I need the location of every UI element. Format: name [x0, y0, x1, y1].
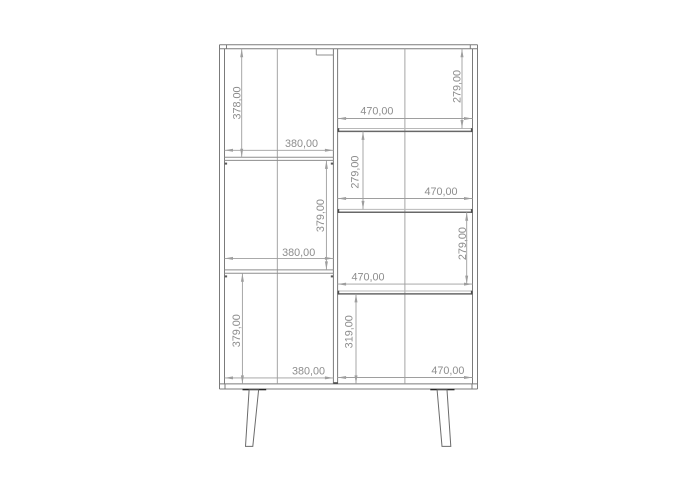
svg-text:470,00: 470,00 [351, 272, 384, 284]
svg-text:279,00: 279,00 [349, 156, 361, 189]
svg-text:380,00: 380,00 [285, 138, 318, 150]
svg-text:470,00: 470,00 [424, 186, 457, 198]
svg-text:470,00: 470,00 [431, 365, 464, 377]
svg-text:380,00: 380,00 [282, 247, 315, 259]
svg-text:279,00: 279,00 [451, 70, 463, 103]
svg-text:379,00: 379,00 [315, 199, 327, 232]
svg-text:380,00: 380,00 [292, 366, 325, 378]
svg-text:319,00: 319,00 [343, 315, 355, 348]
svg-text:378,00: 378,00 [232, 86, 244, 119]
svg-text:470,00: 470,00 [360, 105, 393, 117]
svg-text:279,00: 279,00 [457, 227, 469, 260]
svg-text:379,00: 379,00 [231, 314, 243, 347]
